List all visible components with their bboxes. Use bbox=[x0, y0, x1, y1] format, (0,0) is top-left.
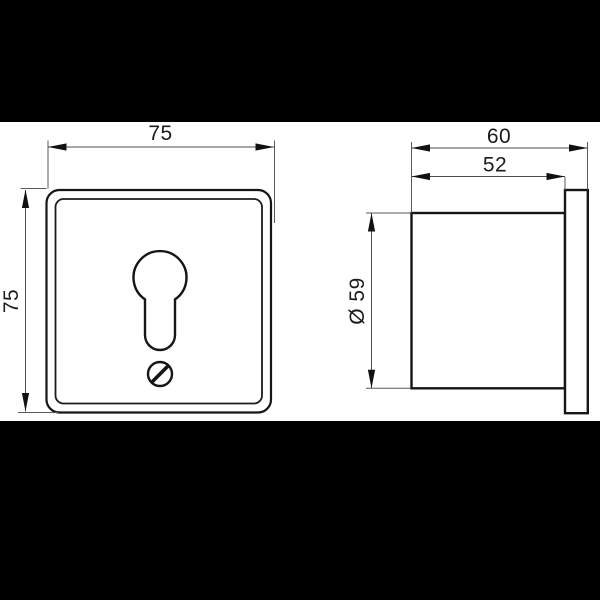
technical-drawing: 75 75 60 bbox=[0, 0, 600, 600]
side-body-outline bbox=[412, 213, 566, 388]
dim-diameter-label: Ø 59 bbox=[346, 277, 369, 325]
dim-overall-depth-label: 60 bbox=[487, 125, 511, 148]
dim-front-height-label: 75 bbox=[0, 289, 23, 313]
side-flange-outline bbox=[565, 190, 588, 413]
letterboxed-image: 75 75 60 bbox=[0, 0, 600, 600]
dim-front-width-label: 75 bbox=[148, 122, 172, 145]
side-view bbox=[412, 190, 588, 413]
front-view bbox=[47, 190, 272, 413]
dim-body-depth-label: 52 bbox=[483, 154, 507, 177]
